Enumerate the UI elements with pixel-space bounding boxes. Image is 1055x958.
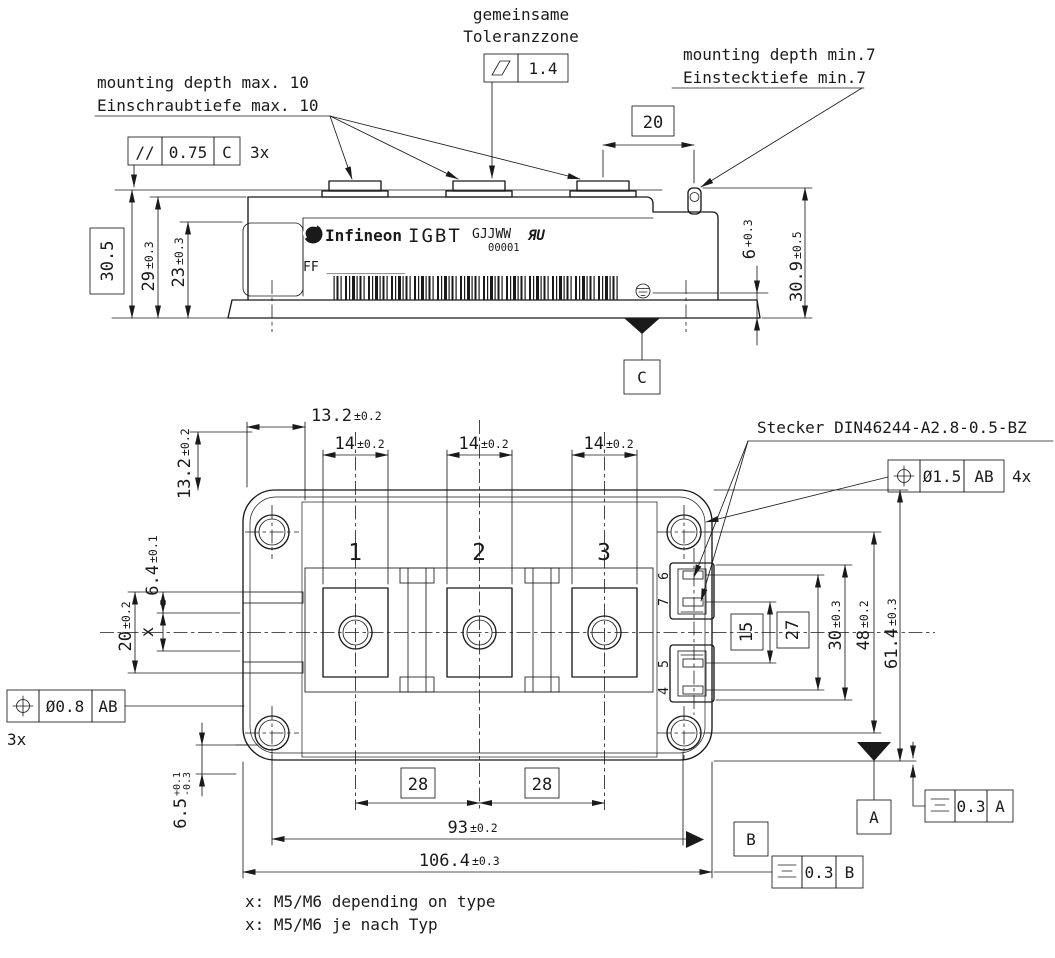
- datum-b-triangle: [686, 831, 704, 848]
- dim-20-v-value: 20: [116, 631, 136, 651]
- screw-terminals: [323, 568, 637, 692]
- position-terminals-value: Ø0.8: [46, 697, 85, 716]
- earth-symbol-icon: [636, 284, 650, 298]
- dim-93-value: 93: [448, 818, 468, 838]
- datum-a: A: [857, 742, 891, 834]
- dim-93-tol: ±0.2: [470, 821, 498, 835]
- datum-b: B: [734, 822, 768, 856]
- product-label: Infineon IGBT GJJWW 00001 ЯU FF ________…: [303, 225, 620, 301]
- symmetry-b-datum: B: [845, 863, 855, 882]
- position-symbol-icon: [894, 466, 914, 486]
- symmetry-symbol-icon: [778, 865, 796, 877]
- dim-27-value: 27: [783, 620, 803, 640]
- side-view-outline: [115, 181, 760, 332]
- side-view: Infineon IGBT GJJWW 00001 ЯU FF ________…: [90, 5, 876, 394]
- symmetry-a-value: 0.3: [957, 797, 986, 816]
- dim-106-4: 106.4 ±0.3: [243, 762, 712, 878]
- dim-28-2: 28: [480, 768, 605, 803]
- dim-106-4-value: 106.4: [419, 851, 470, 871]
- tolerance-note-line1: gemeinsame: [473, 5, 569, 24]
- dim-15-value: 15: [737, 622, 757, 642]
- dim-6-4: 6.4 ±0.1: [128, 535, 243, 613]
- parallelism-symbol-icon: //: [135, 143, 154, 162]
- terminal-bump-1: [322, 181, 388, 197]
- datum-a-label: A: [869, 808, 879, 827]
- dim-x-value: x: [138, 627, 158, 637]
- flatness-value: 1.4: [529, 59, 558, 78]
- igbt-module-drawing: Infineon IGBT GJJWW 00001 ЯU FF ________…: [0, 0, 1055, 958]
- footnote-en: x: M5/M6 depending on type: [245, 892, 495, 911]
- mount-max-de: Einschraubtiefe max. 10: [97, 96, 319, 115]
- brand-text: Infineon: [325, 226, 402, 245]
- dim-13-2-v-value: 13.2: [175, 458, 195, 499]
- dim-13-2-v-tol: ±0.2: [178, 428, 192, 456]
- dim-29: 29 ±0.3: [139, 197, 246, 318]
- dim-14-2-tol: ±0.2: [481, 437, 509, 451]
- flatness-frame: 1.4: [484, 54, 568, 82]
- dim-48-tol: ±0.2: [857, 600, 871, 628]
- mounting-depth-max-note: mounting depth max. 10 Einschraubtiefe m…: [95, 73, 580, 179]
- dim-20-value: 20: [643, 113, 663, 133]
- ul-recognized-mark-icon: ЯU: [527, 228, 545, 244]
- position-pins-datum: AB: [974, 467, 993, 486]
- stecker-note-text: Stecker DIN46244-A2.8-0.5-BZ: [757, 418, 1027, 437]
- date-code-text: GJJWW: [472, 227, 511, 242]
- flatness-symbol-icon: [492, 61, 510, 75]
- dim-48-value: 48: [854, 630, 874, 650]
- dim-30-5-value: 30.5: [98, 241, 118, 282]
- dim-14-2-value: 14: [459, 434, 479, 454]
- datum-c-label: C: [637, 368, 647, 387]
- mounting-depth-min-note: mounting depth min.7 Einstecktiefe min.7: [672, 45, 876, 187]
- common-tolerance-note: gemeinsame Toleranzzone 1.4: [463, 5, 579, 178]
- serial-text: 00001: [488, 242, 520, 254]
- pin-7-label: 7: [657, 598, 672, 606]
- dim-28-1-value: 28: [408, 775, 428, 795]
- type-designation-text: FF __________: [303, 260, 405, 275]
- datum-b-label: B: [746, 830, 756, 849]
- dim-13-2-v: 13.2 ±0.2: [175, 428, 252, 499]
- mounting-hole-top-left: [245, 505, 299, 559]
- tolerance-note-line2: Toleranzzone: [463, 27, 579, 46]
- product-text: IGBT: [408, 225, 462, 247]
- dim-14-1-value: 14: [335, 434, 355, 454]
- dim-14-3-tol: ±0.2: [606, 437, 634, 451]
- symmetry-frame-a: 0.3 A: [913, 742, 1013, 822]
- mount-min-en: mounting depth min.7: [683, 45, 876, 64]
- terminal-3-label: 3: [597, 540, 611, 566]
- top-view-outline: [236, 490, 712, 760]
- dim-20-v-tol: ±0.2: [119, 601, 133, 629]
- terminal-1-label: 1: [348, 540, 362, 566]
- dim-6-value: 6: [740, 249, 760, 259]
- stecker-note: Stecker DIN46244-A2.8-0.5-BZ: [694, 418, 1053, 601]
- dim-93: 93 ±0.2: [272, 752, 704, 848]
- position-terminals-datum: AB: [98, 697, 117, 716]
- top-view: 1 2 3 6 7 5 4: [7, 406, 1053, 888]
- position-symbol-icon: [13, 696, 33, 716]
- dim-30-9-tol: ±0.5: [790, 231, 804, 259]
- dim-6-4-value: 6.4: [143, 565, 163, 596]
- dim-x: x: [138, 613, 240, 651]
- parallelism-count: 3x: [250, 143, 270, 162]
- dim-20: 20: [603, 106, 694, 183]
- dim-28-2-value: 28: [532, 775, 552, 795]
- pin-4-label: 4: [657, 687, 672, 695]
- dim-6-5-tol-minus: -0.3: [182, 772, 193, 796]
- mount-max-en: mounting depth max. 10: [97, 73, 309, 92]
- parallelism-datum: C: [222, 143, 232, 162]
- dim-6: 6 +0.3: [720, 219, 768, 345]
- footnote-de: x: M5/M6 je nach Typ: [245, 915, 438, 934]
- barcode: [332, 276, 620, 300]
- dim-23-value: 23: [169, 267, 189, 287]
- position-pins-count: 4x: [1012, 467, 1032, 486]
- aux-connector-bottom: [670, 645, 714, 702]
- dim-28-1: 28: [356, 768, 480, 803]
- position-terminals-count: 3x: [7, 730, 27, 749]
- dim-30-5: 30.5: [90, 190, 228, 318]
- dim-13-2-h: 13.2 ±0.2: [247, 406, 382, 500]
- terminal-2-label: 2: [472, 540, 486, 566]
- plug-pin: [688, 188, 701, 214]
- pin-6-label: 6: [657, 572, 672, 580]
- terminal-bump-3: [570, 181, 636, 197]
- infineon-logo-icon: [304, 225, 323, 244]
- parallelism-value: 0.75: [169, 143, 208, 162]
- symmetry-a-datum: A: [995, 797, 1005, 816]
- dim-106-4-tol: ±0.3: [472, 854, 500, 868]
- dim-14-3-value: 14: [584, 434, 604, 454]
- dim-6-5: 6.5 +0.1 -0.3: [171, 723, 247, 829]
- technical-drawing-page: Infineon IGBT GJJWW 00001 ЯU FF ________…: [0, 0, 1055, 958]
- mount-min-de: Einstecktiefe min.7: [683, 68, 866, 87]
- dim-29-tol: ±0.3: [142, 241, 156, 269]
- dim-30-value: 30: [826, 630, 846, 650]
- symmetry-frame-b: 0.3 B: [714, 856, 863, 888]
- parallelism-frame: // 0.75 C 3x: [128, 137, 270, 187]
- position-pins-value: Ø1.5: [923, 467, 962, 486]
- datum-c: C: [624, 318, 660, 394]
- dim-13-2-h-value: 13.2: [311, 406, 352, 426]
- dim-6-5-value: 6.5: [171, 798, 191, 829]
- dim-30-9-value: 30.9: [787, 261, 807, 302]
- dim-14-1-tol: ±0.2: [357, 437, 385, 451]
- dim-13-2-h-tol: ±0.2: [354, 409, 382, 423]
- terminal-bump-2: [446, 181, 512, 197]
- dim-61-4-tol: ±0.3: [885, 598, 899, 626]
- aux-connector-top: [670, 563, 714, 619]
- dim-23-tol: ±0.3: [172, 237, 186, 265]
- pin-5-label: 5: [657, 660, 672, 668]
- symmetry-b-value: 0.3: [805, 863, 834, 882]
- position-frame-terminals: Ø0.8 AB 3x: [7, 690, 244, 749]
- dim-29-value: 29: [139, 271, 159, 291]
- dim-61-4-value: 61.4: [882, 628, 902, 669]
- symmetry-symbol-icon: [931, 799, 949, 811]
- dim-6-tol: +0.3: [741, 219, 755, 247]
- dim-30-tol: ±0.3: [829, 600, 843, 628]
- position-frame-pins: Ø1.5 AB 4x: [706, 460, 1032, 522]
- dim-6-4-tol: ±0.1: [146, 535, 160, 563]
